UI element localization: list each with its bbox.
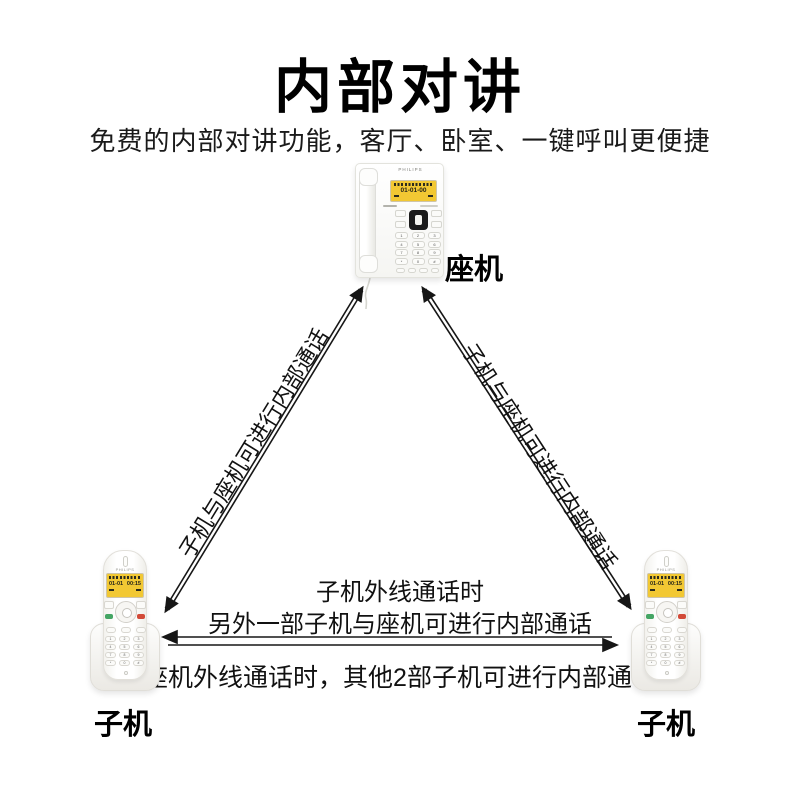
keypad-key: 8 (660, 652, 671, 658)
keypad-key: 7 (395, 249, 408, 256)
earpiece-slot (664, 556, 669, 567)
keypad-key: 6 (428, 241, 441, 248)
handset-right-image: PHILIPS 01-01 00:15 123456789*0# (629, 548, 705, 693)
end-call-key-icon (678, 614, 686, 619)
keypad-key: 4 (105, 644, 116, 650)
keypad-key: 0 (660, 660, 671, 666)
handset-body: PHILIPS 01-01 00:15 123456789*0# (644, 550, 688, 680)
handset-display-text: 01-01 00:15 (649, 579, 683, 589)
microphone-hole (665, 671, 669, 675)
keypad-key: 3 (674, 636, 685, 642)
function-key (662, 627, 672, 633)
keypad-key: 1 (646, 636, 657, 642)
base-phone-display-text: 01-01-00 (393, 186, 434, 195)
keypad-key: * (646, 660, 657, 666)
keypad-key: 3 (133, 636, 144, 642)
screen-softkey-hints (109, 589, 141, 591)
base-redial-key (395, 221, 406, 228)
keypad-key: 6 (133, 644, 144, 650)
keypad-key: 3 (428, 232, 441, 239)
call-key-icon (646, 614, 654, 619)
keypad-key: 7 (105, 652, 116, 658)
handset-right-label: 子机 (637, 701, 695, 743)
keypad-key: 7 (646, 652, 657, 658)
keypad-key: 8 (412, 249, 425, 256)
handset-keypad: 123456789*0# (646, 636, 688, 666)
keypad-key: 9 (674, 652, 685, 658)
navigation-pad (656, 601, 678, 623)
base-phone-screen: 01-01-00 (390, 180, 437, 202)
base-phone-brand: PHILIPS (380, 167, 441, 172)
handset-left-label: 子机 (94, 701, 152, 743)
display-date: 01-01 (650, 579, 664, 589)
keypad-key: 9 (428, 249, 441, 256)
keypad-key: 6 (674, 644, 685, 650)
keypad-key: * (395, 258, 408, 265)
right-softkey (677, 601, 687, 609)
screen-softkey-hints (394, 195, 433, 197)
handset-brand: PHILIPS (645, 567, 687, 572)
base-phone-handset (359, 169, 376, 272)
screen-softkey-hints (650, 589, 682, 591)
display-time: 00:15 (127, 579, 141, 589)
left-softkey (104, 601, 114, 609)
keypad-key: 4 (646, 644, 657, 650)
base-flash-key (431, 210, 442, 217)
base-phone-keypad: 123456789*0# (395, 232, 441, 265)
function-key (121, 627, 131, 633)
keypad-key: 8 (119, 652, 130, 658)
base-function-key-row (396, 268, 439, 273)
keypad-key: # (674, 660, 685, 666)
keypad-key: 2 (660, 636, 671, 642)
keypad-key: 1 (395, 232, 408, 239)
call-key-icon (105, 614, 113, 619)
handset-screen: 01-01 00:15 (647, 573, 685, 598)
keypad-key: # (428, 258, 441, 265)
keypad-key: 5 (660, 644, 671, 650)
keypad-key: 9 (133, 652, 144, 658)
right-softkey (136, 601, 146, 609)
keypad-key: 1 (105, 636, 116, 642)
function-key (136, 627, 146, 633)
display-time: 00:15 (668, 579, 682, 589)
phone-cord (365, 278, 370, 309)
keypad-key: 4 (395, 241, 408, 248)
left-softkey (645, 601, 655, 609)
keypad-key: 5 (412, 241, 425, 248)
base-navigation-pad (409, 210, 428, 230)
function-key (677, 627, 687, 633)
base-mute-key (431, 221, 442, 228)
base-phone-image: PHILIPS 01-01-00 123456789*0# (355, 163, 444, 278)
display-date: 01-01 (109, 579, 123, 589)
base-phone-label: 座机 (445, 246, 503, 288)
handset-left-image: PHILIPS 01-01 00:15 123456789*0# (88, 548, 164, 693)
product-infographic: 内部对讲 免费的内部对讲功能，客厅、卧室、一键呼叫更便捷 子机与座机可进行内部通… (0, 0, 800, 800)
keypad-key: 2 (119, 636, 130, 642)
end-call-key-icon (137, 614, 145, 619)
handset-keypad: 123456789*0# (105, 636, 147, 666)
keypad-key: 2 (412, 232, 425, 239)
handset-brand: PHILIPS (104, 567, 146, 572)
base-phone-model-text (383, 205, 438, 207)
handset-display-text: 01-01 00:15 (108, 579, 142, 589)
keypad-key: 0 (412, 258, 425, 265)
handset-screen: 01-01 00:15 (106, 573, 144, 598)
base-menu-key (395, 210, 406, 217)
keypad-key: 0 (119, 660, 130, 666)
keypad-key: # (133, 660, 144, 666)
navigation-pad (115, 601, 137, 623)
function-key (647, 627, 657, 633)
keypad-key: 5 (119, 644, 130, 650)
keypad-key: * (105, 660, 116, 666)
earpiece-slot (123, 556, 128, 567)
handset-body: PHILIPS 01-01 00:15 123456789*0# (103, 550, 147, 680)
microphone-hole (124, 671, 128, 675)
function-key (106, 627, 116, 633)
